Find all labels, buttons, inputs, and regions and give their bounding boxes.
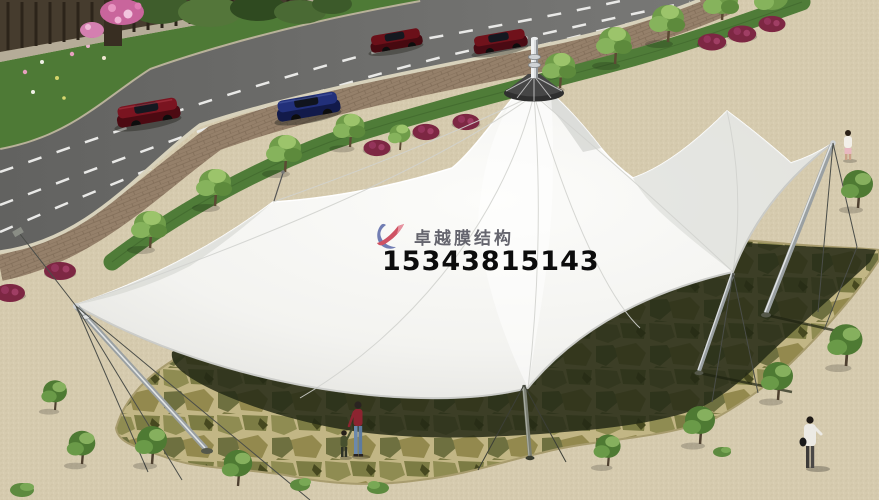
architectural-rendering: 卓越膜结构 15343815143 <box>0 0 879 500</box>
rendering-canvas <box>0 0 879 500</box>
